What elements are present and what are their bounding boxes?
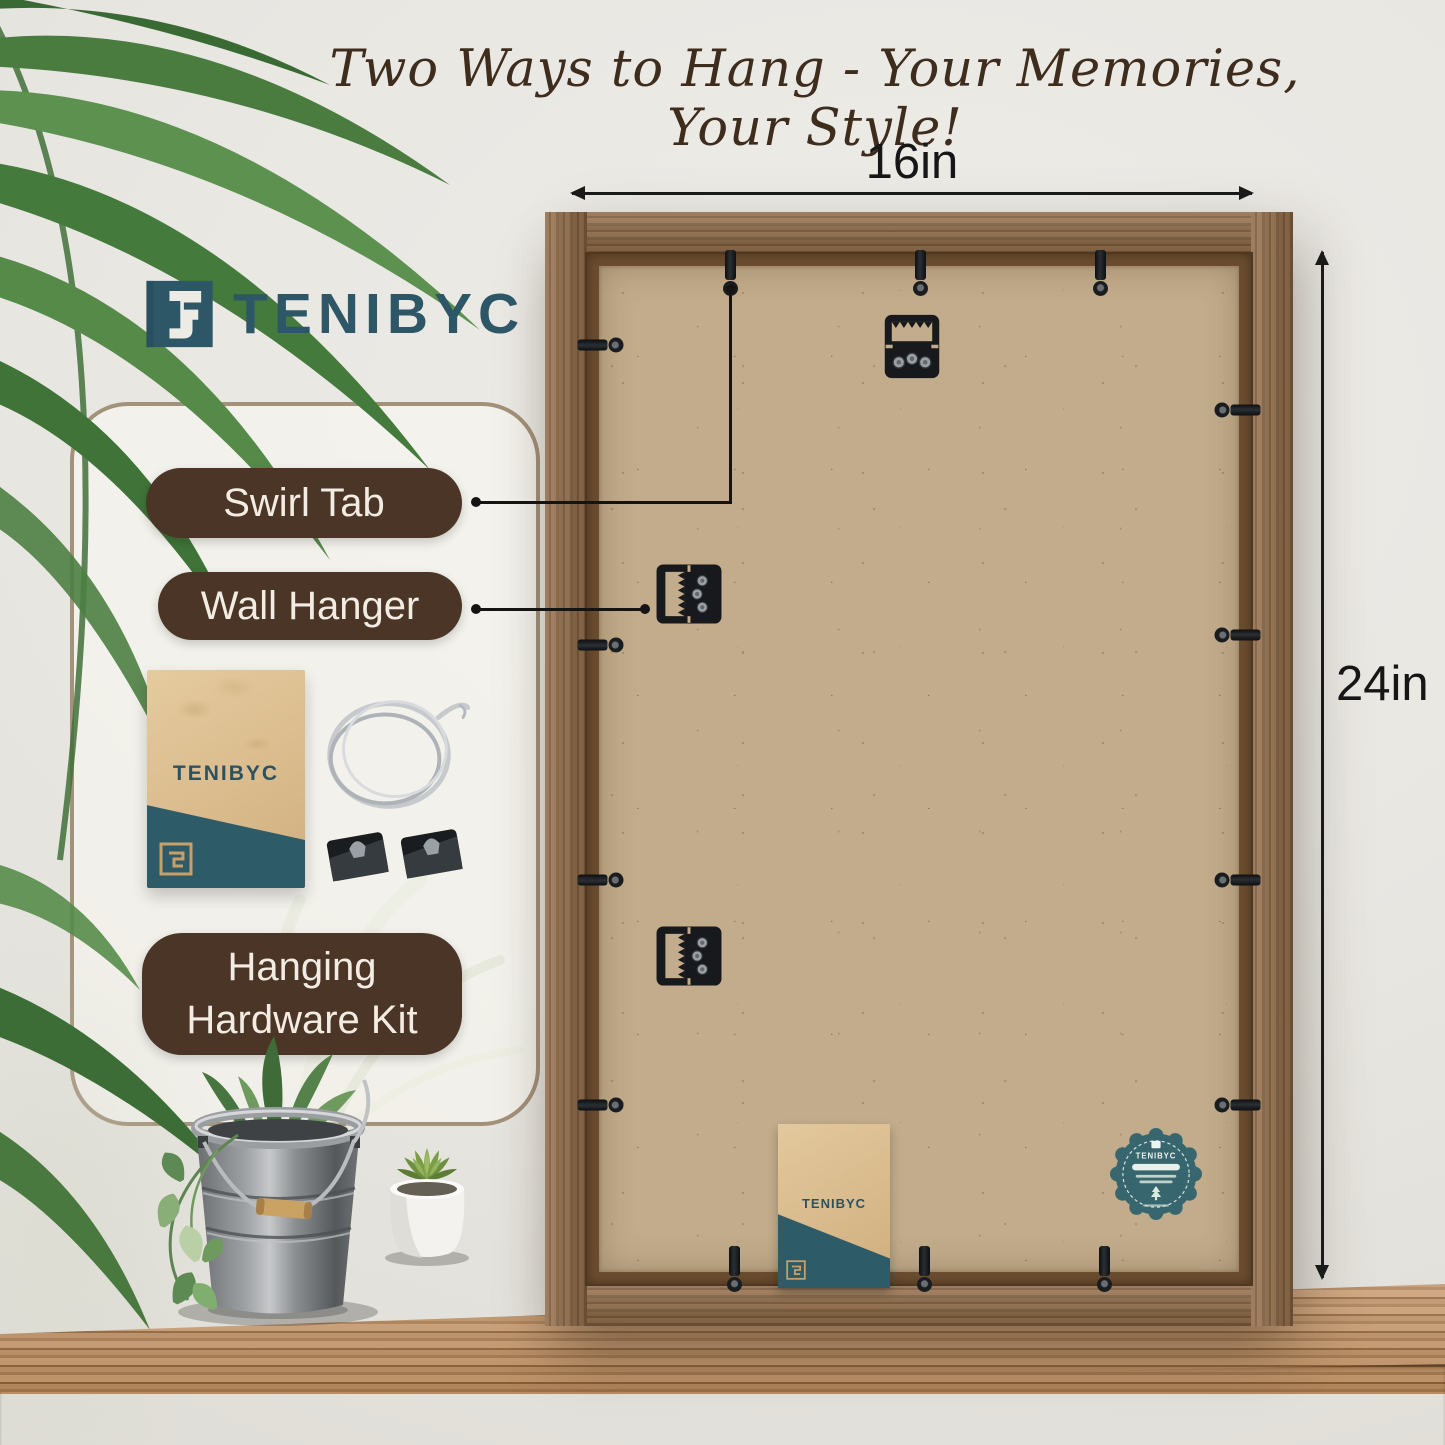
wall-hanger-label-pill: Wall Hanger [158,572,462,640]
swirl-tab-icon [728,1246,741,1292]
hardware-kit-label-line1: Hanging [186,941,417,994]
swirl-tab-label: Swirl Tab [223,481,385,526]
width-dimension-label: 16in [572,134,1252,190]
certification-badge-icon: TENIBYC [1110,1128,1202,1220]
swirl-tab-icon [578,874,624,887]
frame-envelope-image: TENIBYC [778,1124,890,1288]
swirl-tab-icon [914,250,927,296]
brand-logo-icon [159,842,193,876]
corner-clip-icon [322,820,468,892]
swirl-tab-icon [578,639,624,652]
frame-rail-top [545,212,1293,254]
swirl-tab-icon [578,339,624,352]
brand-logo: TENIBYC [145,278,525,350]
product-infographic: Two Ways to Hang - Your Memories, Your S… [0,0,1445,1445]
kit-envelope-image: TENIBYC [147,670,305,888]
brand-logo-icon [786,1260,806,1280]
wall-hanger-label: Wall Hanger [201,584,420,629]
wall-hanger-leader-line [476,608,646,611]
swirl-tab-icon [1098,1246,1111,1292]
swirl-tab-leader-line [729,292,732,504]
frame-rail-left [545,212,587,1326]
swirl-tab-icon [1215,874,1261,887]
swirl-tab-label-pill: Swirl Tab [146,468,462,538]
frame-rail-right [1251,212,1293,1326]
leader-dot [640,604,650,614]
swirl-tab-icon [1215,629,1261,642]
sawtooth-hanger-icon [655,925,723,987]
swirl-tab-icon [578,1099,624,1112]
brand-name: TENIBYC [233,281,525,347]
swirl-tab-leader-line [476,501,732,504]
width-dimension-arrow [572,192,1252,195]
brand-logo-icon [145,278,217,350]
sawtooth-hanger-icon [655,563,723,625]
frame-backing-board [599,266,1239,1272]
succulent-pot-icon [372,1128,482,1268]
height-dimension-label: 24in [1336,656,1429,712]
swirl-tab-icon [1215,1099,1261,1112]
kit-envelope-brand: TENIBYC [147,762,305,786]
swirl-tab-icon [1215,404,1261,417]
sawtooth-hanger-icon [883,313,941,380]
frame-envelope-brand: TENIBYC [778,1196,890,1211]
wire-coil-icon [312,676,470,828]
swirl-tab-icon [918,1246,931,1292]
swirl-tab-icon [1094,250,1107,296]
height-dimension-arrow [1321,252,1324,1278]
badge-brand: TENIBYC [1136,1151,1177,1160]
leader-dot [726,284,736,294]
